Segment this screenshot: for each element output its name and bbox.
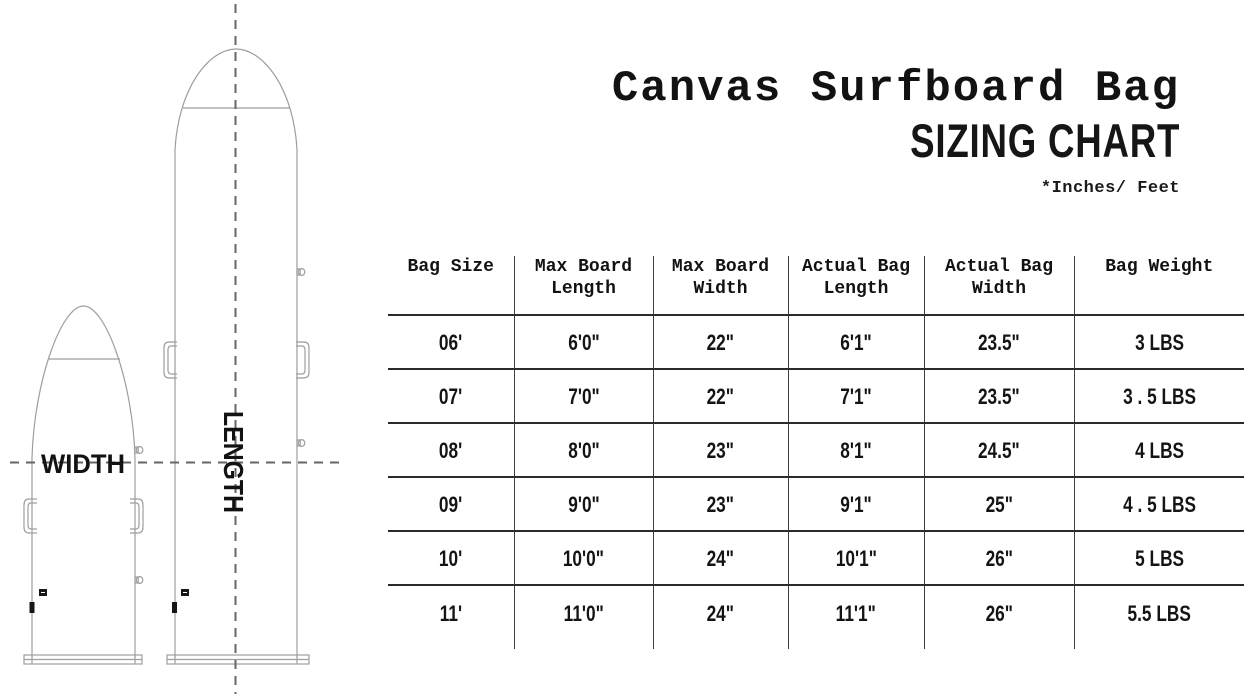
- sizing-chart-page: WIDTH LENGTH Canvas Surfboard Bag SIZING…: [0, 0, 1244, 700]
- cell-value: 23": [707, 437, 734, 463]
- cell-bag-size: 09': [388, 477, 514, 531]
- bag-width-view: [24, 306, 143, 664]
- header-max-board-length: Max BoardLength: [514, 256, 653, 315]
- cell-actual-bag-length: 11'1": [788, 585, 924, 649]
- cell-actual-bag-length: 8'1": [788, 423, 924, 477]
- cell-value: 08': [439, 437, 462, 463]
- cell-bag-weight: 3 LBS: [1074, 315, 1244, 369]
- length-label: LENGTH: [218, 411, 249, 513]
- cell-value: 23.5": [978, 329, 1020, 355]
- handle-right-outer: [296, 342, 309, 378]
- cell-value: 22": [707, 383, 734, 409]
- d-ring-icon: [297, 440, 305, 447]
- d-ring-icon: [135, 577, 143, 584]
- table-row: 11' 11'0" 24" 11'1" 26" 5.5 LBS: [388, 585, 1244, 649]
- cell-value: 06': [439, 329, 462, 355]
- cell-value: 22": [707, 329, 734, 355]
- surfboard-bag-diagram: WIDTH LENGTH: [0, 0, 380, 700]
- cell-value: 24.5": [978, 437, 1020, 463]
- cell-bag-weight: 4 . 5 LBS: [1074, 477, 1244, 531]
- header-line: Actual Bag: [945, 257, 1053, 277]
- table-row: 10' 10'0" 24" 10'1" 26" 5 LBS: [388, 531, 1244, 585]
- cell-bag-size: 07': [388, 369, 514, 423]
- cell-bag-size: 10': [388, 531, 514, 585]
- cell-actual-bag-width: 25": [924, 477, 1074, 531]
- cell-max-board-length: 7'0": [514, 369, 653, 423]
- cell-bag-size: 06': [388, 315, 514, 369]
- cell-value: 23": [707, 491, 734, 517]
- cell-actual-bag-width: 26": [924, 585, 1074, 649]
- cell-actual-bag-width: 23.5": [924, 315, 1074, 369]
- table-row: 06' 6'0" 22" 6'1" 23.5" 3 LBS: [388, 315, 1244, 369]
- cell-value: 6'0": [568, 329, 599, 355]
- header-actual-bag-width: Actual BagWidth: [924, 256, 1074, 315]
- cell-actual-bag-length: 9'1": [788, 477, 924, 531]
- cell-value: 7'0": [568, 383, 599, 409]
- cell-max-board-length: 8'0": [514, 423, 653, 477]
- cell-bag-weight: 5 LBS: [1074, 531, 1244, 585]
- header-line: Bag Weight: [1105, 257, 1213, 277]
- cell-value: 8'1": [840, 437, 871, 463]
- cell-value: 07': [439, 383, 462, 409]
- cell-bag-weight: 5.5 LBS: [1074, 585, 1244, 649]
- header-line: Width: [693, 279, 747, 299]
- cell-max-board-width: 23": [653, 477, 788, 531]
- cell-bag-size: 08': [388, 423, 514, 477]
- title-block: Canvas Surfboard Bag SIZING CHART *Inche…: [612, 64, 1180, 198]
- table-row: 09' 9'0" 23" 9'1" 25" 4 . 5 LBS: [388, 477, 1244, 531]
- cell-actual-bag-length: 6'1": [788, 315, 924, 369]
- header-bag-weight: Bag Weight: [1074, 256, 1244, 315]
- header-max-board-width: Max BoardWidth: [653, 256, 788, 315]
- cell-value: 10'1": [835, 545, 876, 571]
- cell-actual-bag-length: 10'1": [788, 531, 924, 585]
- cell-value: 24": [707, 545, 734, 571]
- cell-value: 25": [985, 491, 1012, 517]
- cell-value: 9'1": [840, 491, 871, 517]
- cell-actual-bag-width: 24.5": [924, 423, 1074, 477]
- cell-max-board-length: 10'0": [514, 531, 653, 585]
- d-ring-icon: [135, 447, 143, 454]
- cell-value: 5.5 LBS: [1128, 600, 1191, 626]
- table-header-row: Bag Size Max BoardLength Max BoardWidth …: [388, 256, 1244, 315]
- handle-right-outer: [130, 499, 143, 533]
- cell-max-board-width: 23": [653, 423, 788, 477]
- cell-value: 11'0": [563, 600, 603, 626]
- cell-value: 3 . 5 LBS: [1123, 383, 1196, 409]
- side-tag: [172, 602, 177, 613]
- cell-actual-bag-width: 26": [924, 531, 1074, 585]
- header-bag-size: Bag Size: [388, 256, 514, 315]
- header-actual-bag-length: Actual BagLength: [788, 256, 924, 315]
- cell-value: 09': [439, 491, 462, 517]
- cell-value: 11': [440, 600, 462, 626]
- table-row: 08' 8'0" 23" 8'1" 24.5" 4 LBS: [388, 423, 1244, 477]
- cell-value: 8'0": [568, 437, 599, 463]
- table-row: 07' 7'0" 22" 7'1" 23.5" 3 . 5 LBS: [388, 369, 1244, 423]
- units-note: *Inches/ Feet: [612, 179, 1180, 198]
- cell-max-board-width: 22": [653, 369, 788, 423]
- header-line: Actual Bag: [802, 257, 910, 277]
- cell-max-board-width: 24": [653, 531, 788, 585]
- cell-value: 5 LBS: [1135, 545, 1184, 571]
- cell-value: 26": [985, 545, 1012, 571]
- cell-max-board-length: 6'0": [514, 315, 653, 369]
- header-line: Length: [551, 279, 616, 299]
- header-line: Length: [824, 279, 889, 299]
- header-line: Bag Size: [408, 257, 494, 277]
- cell-value: 11'1": [836, 600, 876, 626]
- cell-value: 4 LBS: [1135, 437, 1184, 463]
- cell-value: 4 . 5 LBS: [1123, 491, 1196, 517]
- sizing-table: Bag Size Max BoardLength Max BoardWidth …: [388, 256, 1244, 649]
- width-label: WIDTH: [41, 449, 125, 479]
- cell-bag-weight: 4 LBS: [1074, 423, 1244, 477]
- page-subtitle: SIZING CHART: [910, 117, 1180, 165]
- cell-max-board-length: 9'0": [514, 477, 653, 531]
- cell-value: 10'0": [563, 545, 604, 571]
- header-line: Max Board: [672, 257, 769, 277]
- handle-left-outer: [24, 499, 37, 533]
- cell-bag-weight: 3 . 5 LBS: [1074, 369, 1244, 423]
- cell-max-board-width: 24": [653, 585, 788, 649]
- cell-value: 23.5": [978, 383, 1020, 409]
- cell-value: 9'0": [568, 491, 599, 517]
- page-title: Canvas Surfboard Bag: [612, 64, 1180, 114]
- cell-value: 10': [439, 545, 462, 571]
- cell-max-board-width: 22": [653, 315, 788, 369]
- cell-actual-bag-width: 23.5": [924, 369, 1074, 423]
- cell-bag-size: 11': [388, 585, 514, 649]
- cell-max-board-length: 11'0": [514, 585, 653, 649]
- side-tag: [30, 602, 35, 613]
- header-line: Max Board: [535, 257, 632, 277]
- cell-actual-bag-length: 7'1": [788, 369, 924, 423]
- d-ring-icon: [297, 269, 305, 276]
- cell-value: 24": [707, 600, 734, 626]
- cell-value: 7'1": [840, 383, 871, 409]
- cell-value: 26": [985, 600, 1012, 626]
- handle-left-inner: [168, 346, 177, 374]
- cell-value: 3 LBS: [1135, 329, 1184, 355]
- header-line: Width: [972, 279, 1026, 299]
- cell-value: 6'1": [840, 329, 871, 355]
